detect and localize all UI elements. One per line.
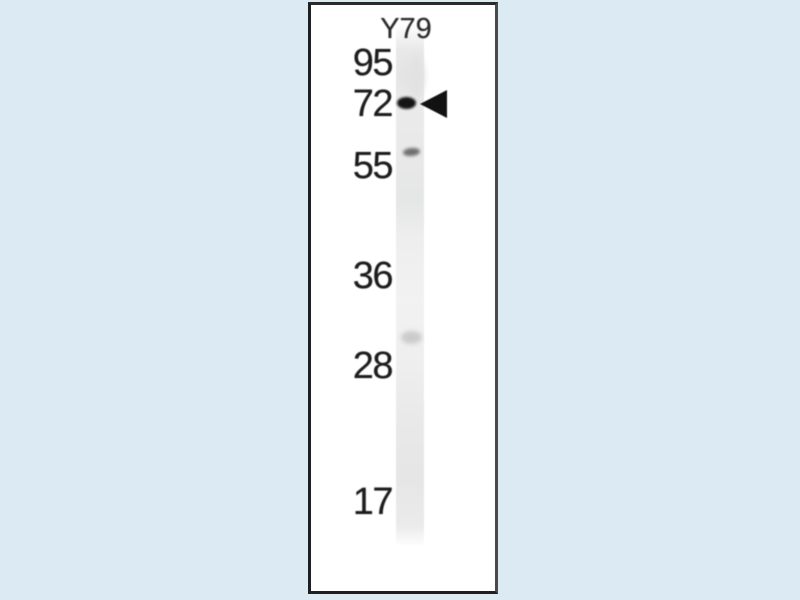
marker-72: 72	[311, 82, 392, 126]
marker-28: 28	[311, 344, 392, 388]
band-30kda-faint	[401, 331, 422, 344]
marker-36: 36	[311, 254, 392, 298]
band-72kda	[397, 97, 416, 109]
marker-95: 95	[311, 41, 392, 85]
western-blot-panel: Y79 95 72 55 36 28 17	[308, 2, 498, 594]
figure-background: Y79 95 72 55 36 28 17	[0, 0, 800, 600]
marker-55: 55	[311, 144, 392, 188]
marker-17: 17	[311, 480, 392, 524]
arrowhead-left-icon	[420, 90, 447, 118]
